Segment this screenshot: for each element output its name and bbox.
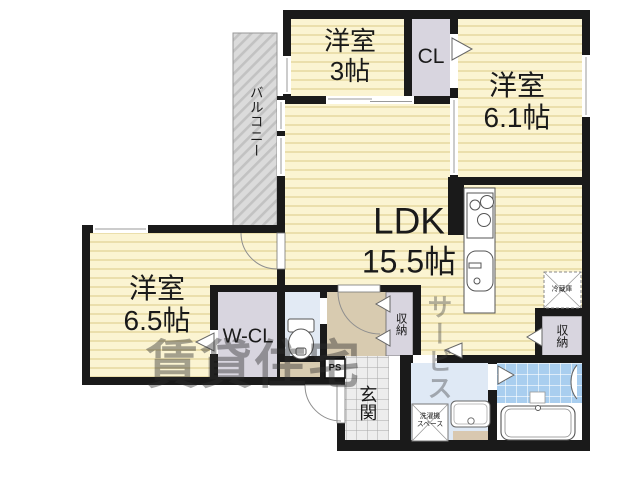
wall-segment (535, 308, 590, 316)
genkan-step (389, 356, 401, 440)
cl-label: CL (418, 45, 445, 69)
sliding-door (326, 96, 414, 104)
wcl-label: W-CL (223, 326, 274, 349)
hall-storage-label: 収納 (393, 313, 406, 336)
kitchen-sink (467, 251, 493, 291)
bath-mat (453, 431, 488, 440)
burner (481, 196, 494, 209)
wall-segment (82, 225, 90, 385)
wall-segment (448, 177, 590, 185)
wall-segment (337, 440, 590, 451)
room-size: 3帖 (324, 57, 376, 87)
tub-faucet (536, 406, 541, 411)
room-size: 15.5帖 (362, 243, 456, 280)
bedroom-top-label: 洋室 3帖 (324, 27, 376, 87)
door-leaf (338, 285, 380, 292)
basin-drain (468, 418, 474, 424)
room-name: 洋室 (324, 27, 376, 57)
room-name: 洋室 (484, 70, 551, 102)
wall-segment (404, 10, 412, 104)
watermark-vertical: サービス (420, 294, 456, 414)
wall-segment (400, 355, 411, 443)
kitchen-storage-label: 収納 (554, 324, 568, 348)
bedroom-left-label: 洋室 6.5帖 (124, 273, 191, 337)
wall-segment (210, 285, 285, 292)
bath-drain (530, 392, 545, 403)
balcony-label: バルコニー (247, 86, 263, 159)
ldk-label: LDK 15.5帖 (362, 200, 456, 279)
washer-space-label: 洗濯機 スペース (417, 413, 443, 429)
drain (474, 278, 480, 284)
wall-segment (283, 10, 590, 19)
toilet-door-opening (320, 298, 327, 324)
room-size: 6.5帖 (124, 305, 191, 337)
bedroom-right-label: 洋室 6.1帖 (484, 70, 551, 134)
room-size: 6.1帖 (484, 102, 551, 134)
burner (478, 214, 491, 227)
room-name: 洋室 (124, 273, 191, 305)
door-leaf (277, 233, 285, 269)
ps-label: PS (329, 364, 342, 375)
burner (470, 200, 480, 210)
faucet (469, 263, 481, 268)
bath-door-opening (488, 364, 497, 390)
kitchen-counter (464, 188, 495, 313)
genkan-label: 玄関 (357, 385, 378, 421)
bathtub (501, 406, 575, 440)
room-name: LDK (362, 200, 456, 243)
floorplan-canvas: 賃貸住宅 サービス 洋室 3帖 CL 洋室 6.1帖 LDK 15.5帖 洋室 … (0, 0, 640, 480)
fridge-label: 冷蔵庫 (552, 286, 572, 294)
